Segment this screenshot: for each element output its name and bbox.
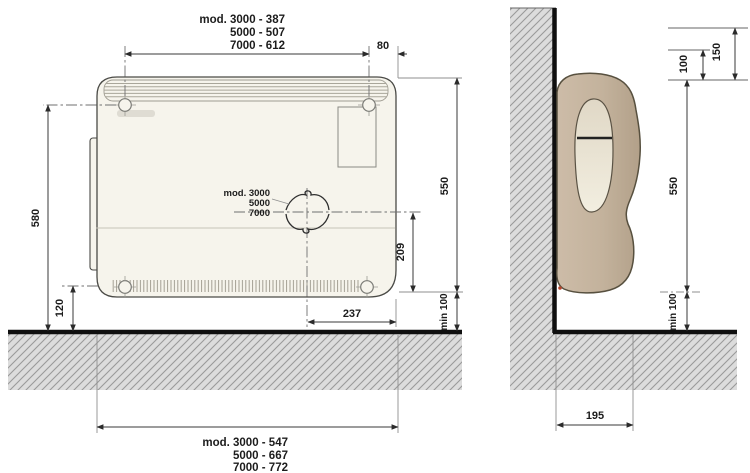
- dim-80-label: 80: [377, 40, 389, 52]
- dim-min100-side: min 100: [660, 292, 703, 331]
- wall-hatch: [510, 8, 553, 334]
- overall-width-line2: 5000 - 667: [233, 450, 288, 462]
- dim-580-label: 580: [30, 209, 42, 227]
- dim-150-label: 150: [711, 43, 723, 61]
- side-view: 100 150 550 min 100 195: [510, 8, 748, 431]
- side-cover-inset: [575, 99, 613, 212]
- dim-min100-front: min 100: [399, 292, 463, 331]
- dim-80: 80: [360, 40, 407, 78]
- hole-spacing-line3: 7000 - 612: [230, 40, 285, 52]
- dim-overall-width: mod. 3000 - 547 5000 - 667 7000 - 772: [97, 427, 398, 473]
- dim-195: 195: [557, 410, 633, 425]
- dim-120: 120: [54, 286, 98, 331]
- dim-min100-front-label: min 100: [439, 293, 450, 331]
- bottom-grille: [112, 280, 360, 292]
- dim-237-label: 237: [343, 308, 361, 320]
- dim-100-label: 100: [678, 55, 690, 73]
- dim-195-label: 195: [586, 410, 604, 422]
- dim-550-side-label: 550: [668, 177, 680, 195]
- dim-550-side: 550: [668, 80, 687, 292]
- hole-spacing-line1: mod. 3000 - 387: [199, 14, 285, 26]
- overall-width-line3: 7000 - 772: [233, 462, 288, 473]
- dim-min100-side-label: min 100: [668, 293, 679, 331]
- dim-100: 100: [678, 50, 703, 80]
- knockout-label-line3: 7000: [249, 208, 270, 219]
- overall-width-line1: mod. 3000 - 547: [202, 437, 288, 449]
- dim-120-label: 120: [54, 299, 66, 317]
- dim-209: 209: [395, 213, 413, 292]
- indicator-dot: [558, 286, 562, 290]
- dim-237: 237: [308, 299, 396, 327]
- installation-diagram: mod. 3000 - 387 5000 - 507 7000 - 612 80…: [0, 0, 750, 473]
- floor-hatch-front: [8, 334, 462, 390]
- heater-side-profile: [557, 73, 641, 293]
- dim-150: 150: [711, 28, 735, 80]
- floor-hatch-side: [510, 334, 737, 390]
- dim-550-front: 550: [398, 78, 462, 292]
- dim-209-label: 209: [395, 243, 407, 261]
- diagram-canvas: mod. 3000 - 387 5000 - 507 7000 - 612 80…: [0, 0, 750, 473]
- dim-550-front-label: 550: [439, 177, 451, 195]
- front-view: mod. 3000 - 387 5000 - 507 7000 - 612 80…: [8, 14, 463, 473]
- hole-spacing-line2: 5000 - 507: [230, 27, 285, 39]
